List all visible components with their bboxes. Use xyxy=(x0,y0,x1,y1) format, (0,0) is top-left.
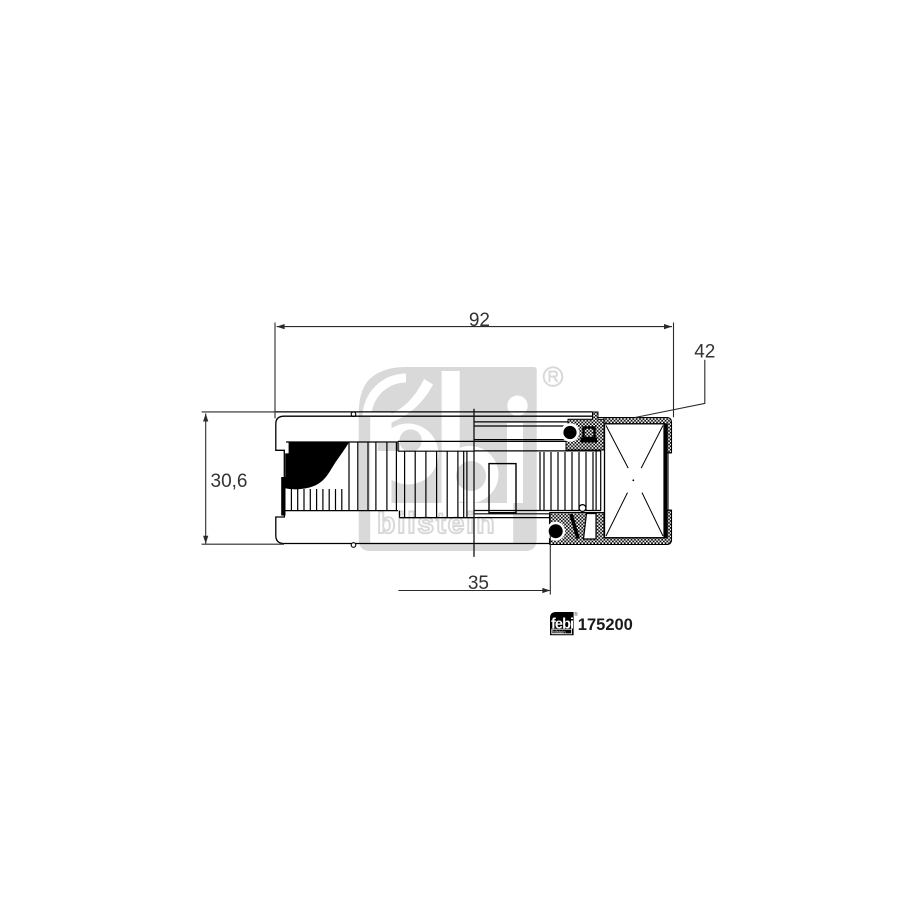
svg-text:175200: 175200 xyxy=(578,616,633,634)
svg-text:42: 42 xyxy=(694,341,715,362)
svg-text:35: 35 xyxy=(468,573,489,594)
svg-text:30,6: 30,6 xyxy=(211,471,248,492)
svg-text:bilstein: bilstein xyxy=(553,629,567,634)
svg-text:92: 92 xyxy=(469,310,490,331)
